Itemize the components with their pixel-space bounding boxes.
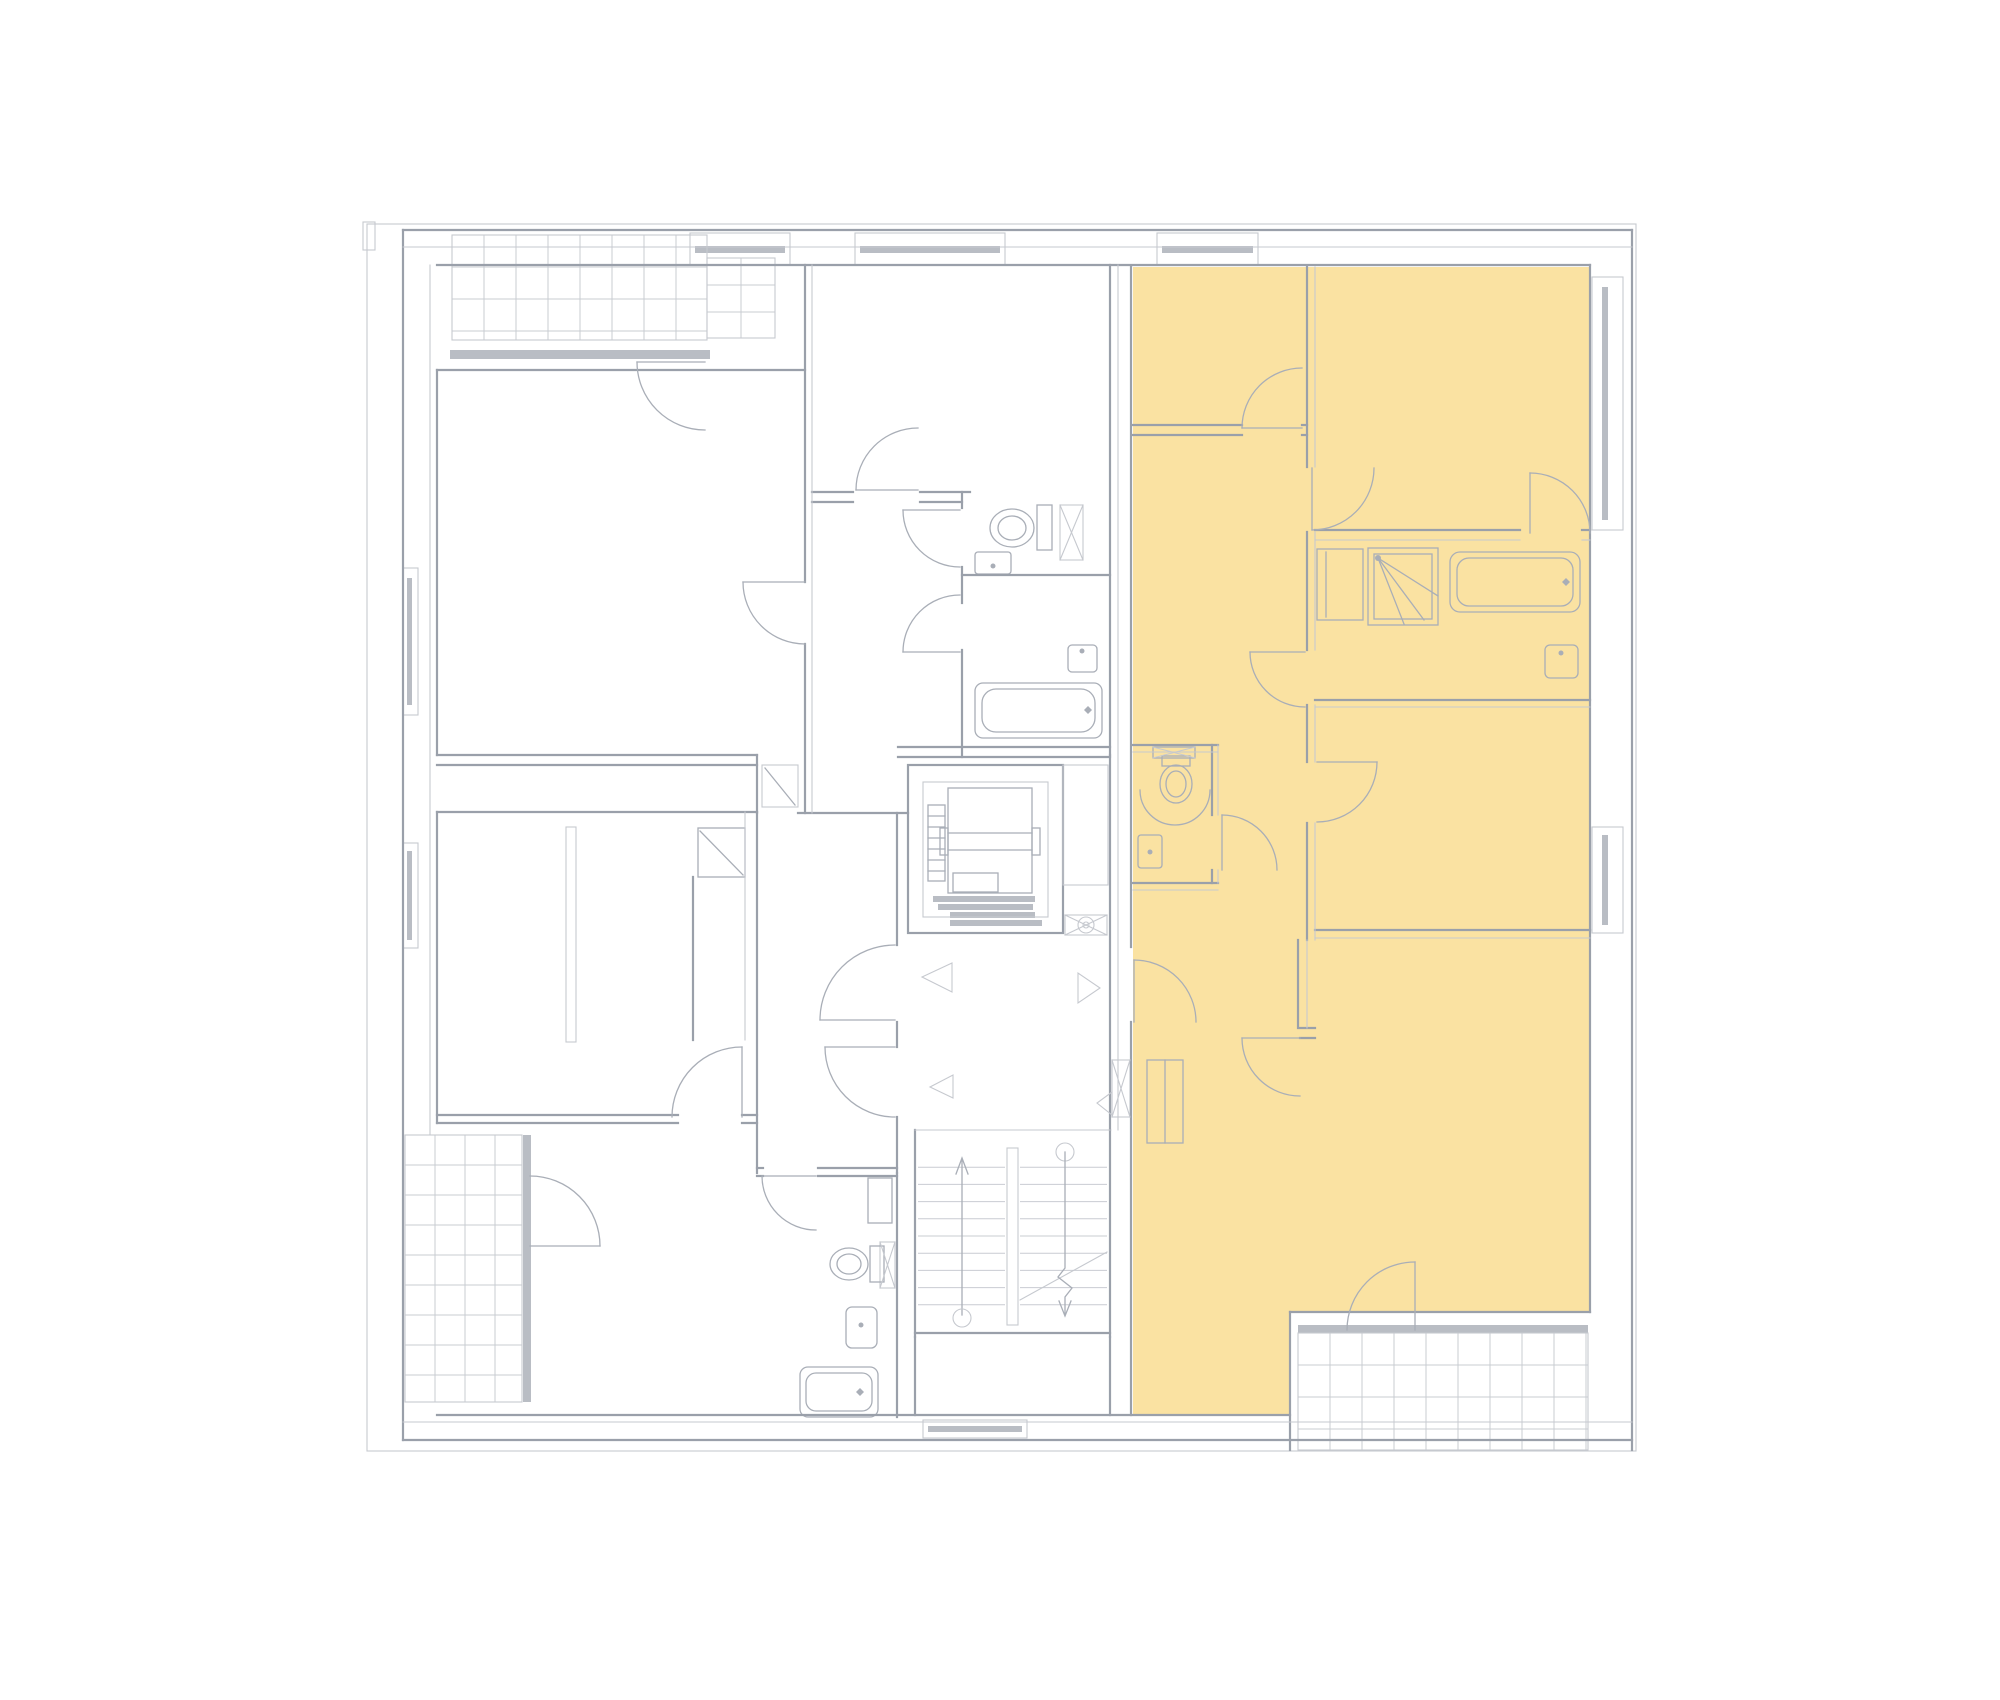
toilet-bowl <box>998 516 1026 540</box>
balcony-bottom-left <box>405 1135 522 1402</box>
tap-dot <box>859 1323 864 1328</box>
glazing <box>407 578 412 705</box>
glazing <box>1298 1325 1588 1333</box>
glazing <box>928 1426 1022 1432</box>
elevator-cab <box>948 788 1032 893</box>
glazing <box>1602 287 1608 520</box>
glazing <box>950 920 1042 926</box>
balcony-bottom-right <box>1298 1333 1588 1450</box>
drain-diamond <box>1084 706 1092 714</box>
symbol-layer <box>922 963 1112 1316</box>
door-swing <box>903 510 960 567</box>
glazing <box>938 904 1033 910</box>
door-swing <box>903 595 960 652</box>
toilet-tank-apt1 <box>1037 505 1052 550</box>
facade-notch <box>363 222 375 250</box>
elevator-cab-box <box>953 873 998 892</box>
highlighted-unit[interactable] <box>1133 267 1590 1415</box>
floorplan-page <box>0 0 2000 1700</box>
cabinet-apt2 <box>868 1178 892 1223</box>
floor-plan <box>0 0 2000 1700</box>
glazing <box>407 851 412 940</box>
glazing <box>933 896 1035 902</box>
tap-dot <box>1080 649 1085 654</box>
elevator-guide-right <box>1032 828 1040 855</box>
door-swing <box>856 428 918 490</box>
fixture-line <box>700 831 743 875</box>
drain-diamond <box>856 1388 864 1396</box>
door-direction-triangle-2 <box>930 1075 953 1098</box>
door-swing <box>530 1176 600 1246</box>
toilet-apt1 <box>990 509 1034 547</box>
door-swing <box>672 1047 742 1117</box>
sink-wc-apt1 <box>975 552 1011 574</box>
tap-dot <box>1148 850 1153 855</box>
fixture-line <box>765 768 795 805</box>
glazing <box>523 1135 531 1402</box>
elevator-guide-left <box>940 828 948 855</box>
door-direction-triangle-1 <box>922 963 952 992</box>
bathtub-apt1 <box>975 683 1102 738</box>
tap-dot <box>991 564 996 569</box>
stairs-down-line <box>1058 1152 1072 1314</box>
thin-line <box>1020 1252 1107 1300</box>
glazing <box>450 350 710 359</box>
door-swing <box>762 1176 816 1230</box>
door-direction-triangle-3 <box>1078 973 1100 1003</box>
vent-duct <box>1063 765 1108 885</box>
toilet-bowl <box>837 1254 861 1274</box>
toilet-tank-apt2 <box>870 1246 884 1282</box>
stair-rail <box>1007 1148 1018 1325</box>
sink-apt2 <box>846 1307 877 1348</box>
tap-dot <box>1375 555 1381 561</box>
door-swing <box>637 362 705 430</box>
door-swing <box>743 582 805 644</box>
bathtub-apt1-inner <box>982 689 1095 732</box>
tap-dot <box>1559 651 1564 656</box>
door-swing <box>825 1047 895 1117</box>
toilet-apt2 <box>830 1248 868 1280</box>
partition-stub <box>566 827 576 1042</box>
glazing <box>1602 835 1608 925</box>
door-swing <box>820 945 895 1020</box>
